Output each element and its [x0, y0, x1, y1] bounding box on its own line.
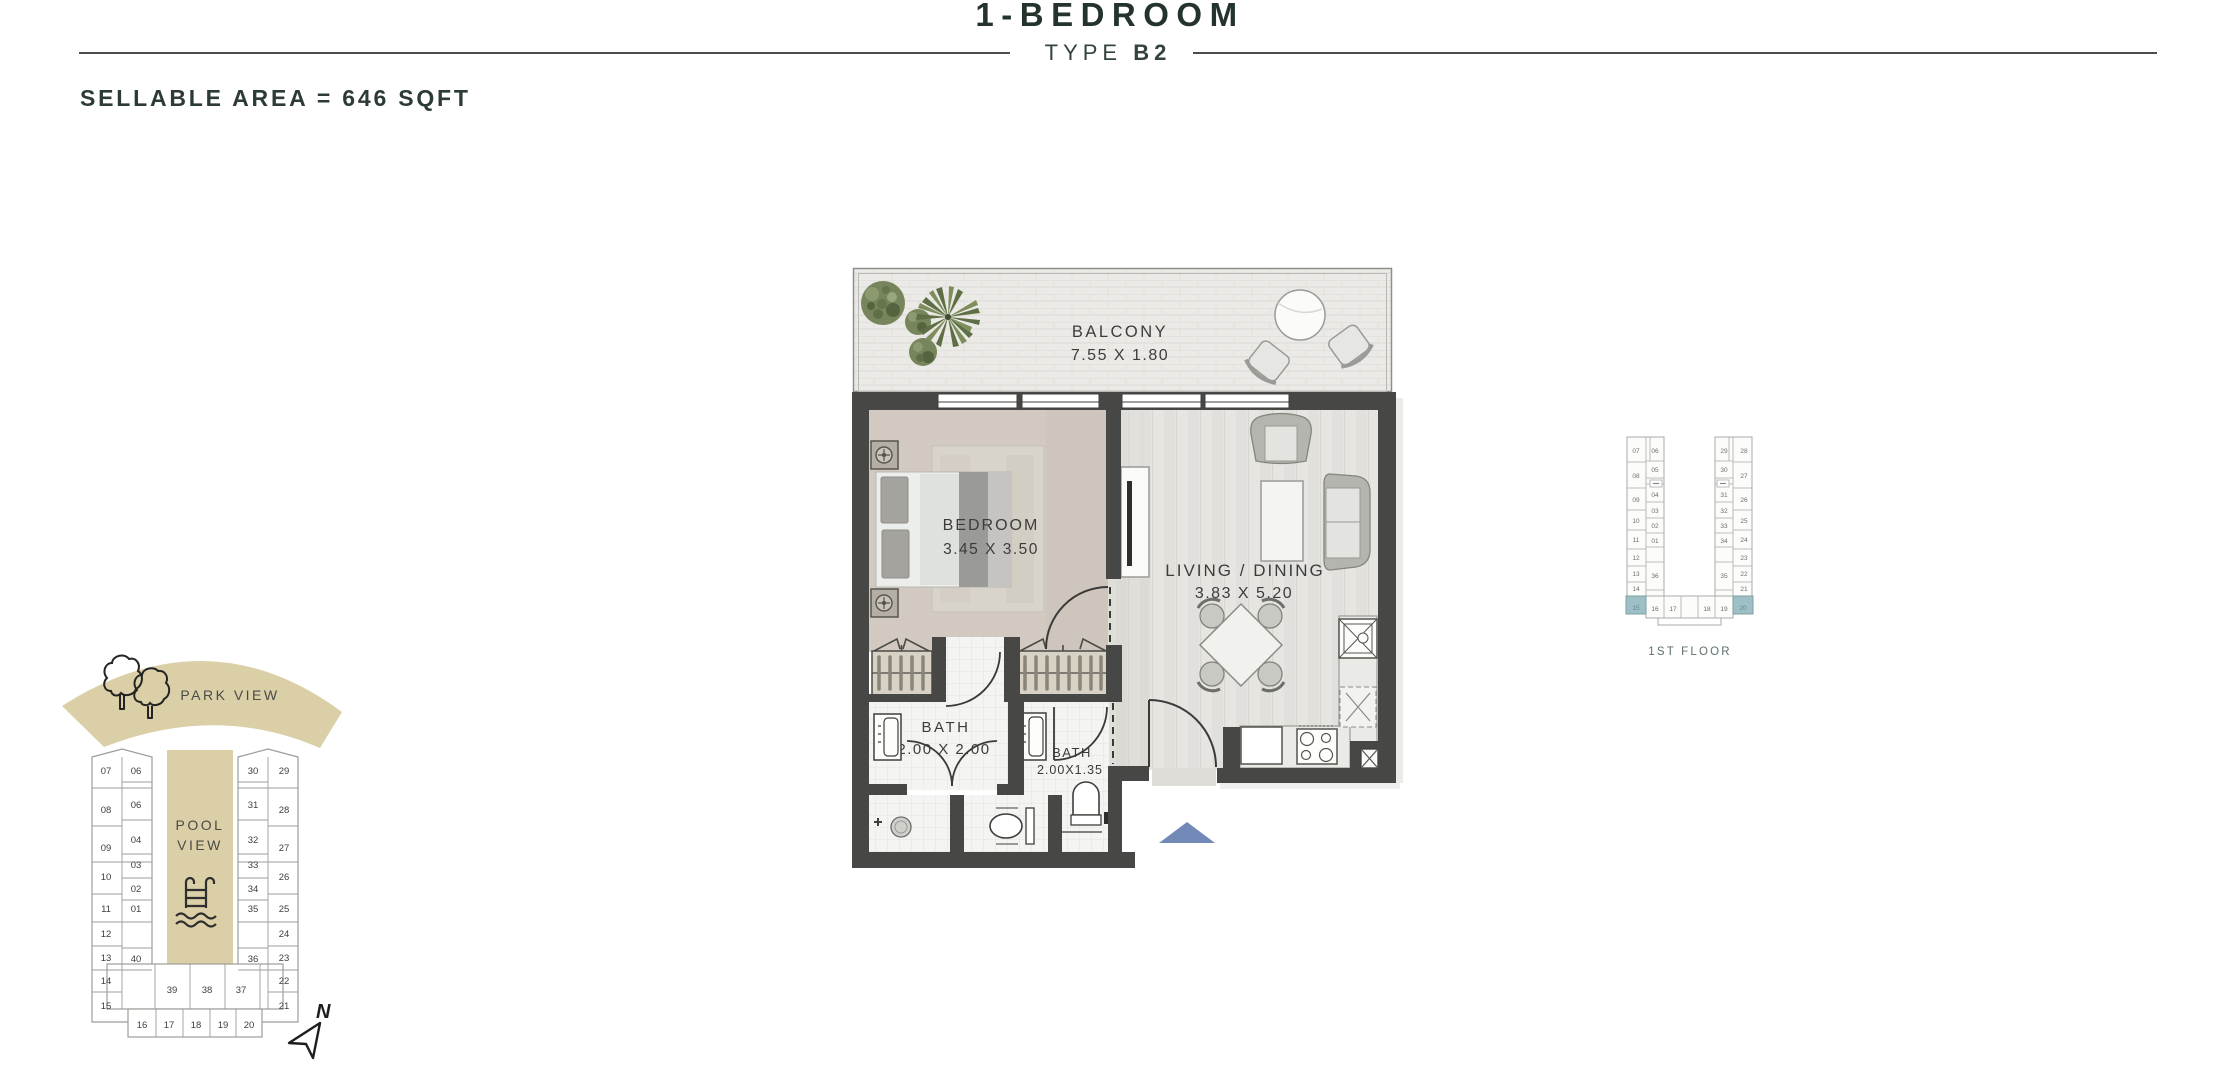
- svg-text:32: 32: [1720, 508, 1728, 515]
- svg-text:27: 27: [279, 843, 290, 854]
- svg-text:LIVING / DINING: LIVING / DINING: [1165, 561, 1324, 580]
- svg-text:15: 15: [1632, 605, 1640, 612]
- svg-text:22: 22: [1740, 571, 1748, 578]
- svg-text:20: 20: [1739, 605, 1747, 612]
- svg-text:N: N: [316, 1001, 331, 1023]
- svg-text:25: 25: [1740, 518, 1748, 525]
- svg-text:02: 02: [1651, 523, 1659, 530]
- svg-text:21: 21: [279, 1001, 290, 1012]
- svg-text:02: 02: [131, 884, 142, 895]
- svg-text:20: 20: [244, 1020, 255, 1031]
- svg-text:13: 13: [1632, 571, 1640, 578]
- svg-text:23: 23: [1740, 555, 1748, 562]
- svg-text:21: 21: [1740, 586, 1748, 593]
- svg-text:03: 03: [131, 860, 142, 871]
- svg-text:30: 30: [1720, 467, 1728, 474]
- svg-text:36: 36: [248, 954, 259, 965]
- svg-text:1ST FLOOR: 1ST FLOOR: [1648, 646, 1732, 658]
- svg-text:12: 12: [101, 929, 112, 940]
- svg-text:17: 17: [164, 1020, 175, 1031]
- svg-text:24: 24: [279, 929, 290, 940]
- svg-text:34: 34: [1720, 538, 1728, 545]
- svg-text:19: 19: [1720, 606, 1728, 613]
- svg-text:38: 38: [202, 985, 213, 996]
- svg-text:VIEW: VIEW: [177, 837, 223, 853]
- svg-text:30: 30: [248, 766, 259, 777]
- svg-text:06: 06: [131, 766, 142, 777]
- svg-text:39: 39: [167, 985, 178, 996]
- svg-text:09: 09: [101, 843, 112, 854]
- svg-text:7.55 X 1.80: 7.55 X 1.80: [1071, 347, 1169, 364]
- svg-text:04: 04: [131, 835, 142, 846]
- svg-text:22: 22: [279, 976, 290, 987]
- svg-text:23: 23: [279, 953, 290, 964]
- svg-text:40: 40: [131, 954, 142, 965]
- svg-text:10: 10: [101, 872, 112, 883]
- svg-text:31: 31: [1720, 492, 1728, 499]
- svg-text:26: 26: [279, 872, 290, 883]
- svg-text:05: 05: [1651, 467, 1659, 474]
- svg-text:POOL: POOL: [176, 817, 225, 833]
- svg-text:35: 35: [1720, 573, 1728, 580]
- svg-text:28: 28: [279, 805, 290, 816]
- svg-text:31: 31: [248, 800, 259, 811]
- svg-text:16: 16: [137, 1020, 148, 1031]
- svg-text:32: 32: [248, 835, 259, 846]
- svg-text:14: 14: [1632, 586, 1640, 593]
- svg-text:13: 13: [101, 953, 112, 964]
- svg-text:01: 01: [131, 904, 142, 915]
- svg-text:06: 06: [131, 800, 142, 811]
- svg-text:29: 29: [1720, 448, 1728, 455]
- svg-text:08: 08: [101, 805, 112, 816]
- svg-text:07: 07: [1632, 448, 1640, 455]
- svg-text:18: 18: [191, 1020, 202, 1031]
- svg-text:17: 17: [1669, 606, 1677, 613]
- svg-text:3.45 X 3.50: 3.45 X 3.50: [943, 541, 1039, 558]
- svg-text:01: 01: [1651, 538, 1659, 545]
- svg-text:BATH: BATH: [922, 719, 971, 736]
- svg-text:03: 03: [1651, 508, 1659, 515]
- svg-text:14: 14: [101, 976, 112, 987]
- svg-text:19: 19: [218, 1020, 229, 1031]
- svg-text:26: 26: [1740, 497, 1748, 504]
- svg-text:24: 24: [1740, 537, 1748, 544]
- svg-text:35: 35: [248, 904, 259, 915]
- svg-text:11: 11: [101, 904, 111, 915]
- svg-text:10: 10: [1632, 518, 1640, 525]
- svg-text:29: 29: [279, 766, 290, 777]
- svg-text:34: 34: [248, 884, 259, 895]
- svg-text:PARK VIEW: PARK VIEW: [180, 687, 279, 703]
- svg-text:2.00X1.35: 2.00X1.35: [1037, 763, 1103, 777]
- svg-text:15: 15: [101, 1001, 112, 1012]
- svg-text:BEDROOM: BEDROOM: [943, 517, 1040, 534]
- svg-text:25: 25: [279, 904, 290, 915]
- svg-text:11: 11: [1633, 537, 1640, 544]
- svg-text:2.00 X 2.00: 2.00 X 2.00: [897, 741, 990, 758]
- svg-text:16: 16: [1651, 606, 1659, 613]
- svg-text:08: 08: [1632, 473, 1640, 480]
- svg-text:36: 36: [1651, 573, 1659, 580]
- svg-text:06: 06: [1651, 448, 1659, 455]
- svg-text:BALCONY: BALCONY: [1072, 323, 1168, 341]
- svg-text:37: 37: [236, 985, 247, 996]
- svg-text:09: 09: [1632, 497, 1640, 504]
- svg-text:07: 07: [101, 766, 112, 777]
- svg-text:04: 04: [1651, 492, 1659, 499]
- svg-text:27: 27: [1740, 473, 1748, 480]
- svg-text:12: 12: [1632, 555, 1640, 562]
- svg-text:28: 28: [1740, 448, 1748, 455]
- svg-text:33: 33: [1720, 523, 1728, 530]
- svg-text:18: 18: [1703, 606, 1711, 613]
- svg-text:33: 33: [248, 860, 259, 871]
